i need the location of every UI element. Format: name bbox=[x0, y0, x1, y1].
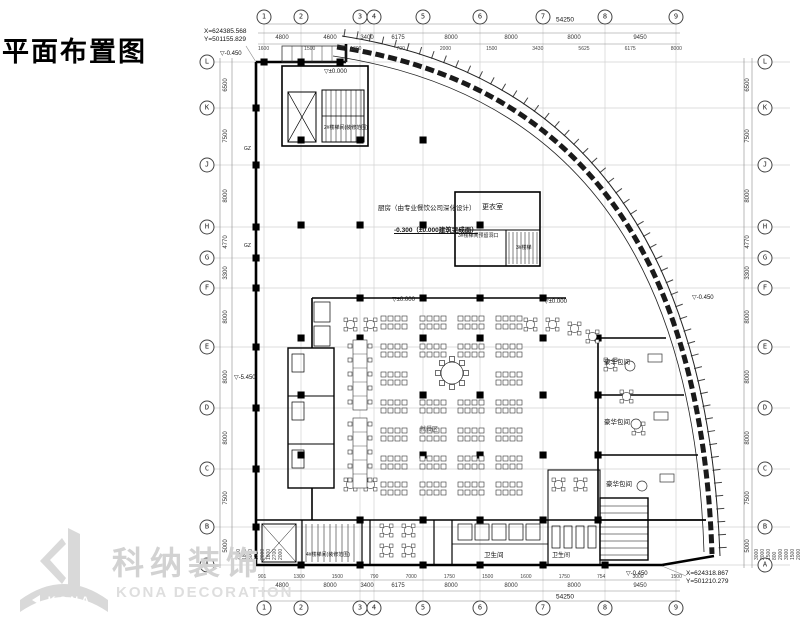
dimension: 4770 bbox=[223, 235, 229, 248]
dimension: 8000 bbox=[223, 310, 229, 323]
grid-bubble-top: 6 bbox=[473, 10, 488, 25]
coordinate-bottom-right: X=624318.867 Y=501210.279 bbox=[686, 570, 728, 586]
grid-bubble-bottom: 5 bbox=[416, 601, 431, 616]
room-label-vip: 豪华包间 bbox=[604, 416, 630, 426]
kona-logo-icon: KONA bbox=[16, 524, 112, 620]
coordinate-y: Y=501210.279 bbox=[686, 578, 728, 586]
grid-bubble-top: 7 bbox=[536, 10, 551, 25]
drawing-sheet: 平面布置图 X=624385.568 Y=501155.829 X=624318… bbox=[0, 0, 800, 629]
dimension: 1750 bbox=[444, 574, 455, 580]
dimension: 1500 bbox=[482, 574, 493, 580]
room-label-wc: 卫生间 bbox=[552, 550, 570, 559]
grid-bubble-left: F bbox=[200, 281, 215, 296]
grid-bubble-bottom: 2 bbox=[294, 601, 309, 616]
dimension: 9450 bbox=[633, 583, 646, 589]
dimension: 1600 bbox=[520, 574, 531, 580]
grid-bubble-bottom: 1 bbox=[257, 601, 272, 616]
dimension: 3300 bbox=[223, 266, 229, 279]
room-label-stair3: 3#楼梯 bbox=[516, 244, 532, 251]
dimension: 1500 bbox=[332, 574, 343, 580]
dimension: 8000 bbox=[671, 46, 682, 52]
dimension-chain-top: 1600 1500 1600 700 2000 1500 3430 5625 6… bbox=[258, 46, 682, 52]
dimension: 9450 bbox=[633, 35, 646, 41]
grid-bubble-bottom: 7 bbox=[536, 601, 551, 616]
dimension: 4800 bbox=[275, 35, 288, 41]
dimension: 790 bbox=[370, 574, 378, 580]
dimension: 3400 bbox=[360, 35, 373, 41]
page-title: 平面布置图 bbox=[2, 30, 147, 69]
dimension: 7500 bbox=[223, 491, 229, 504]
dimension: 8000 bbox=[223, 189, 229, 202]
column-tag: GZ bbox=[244, 243, 251, 249]
room-label-dining: 就餐区 bbox=[420, 424, 438, 433]
room-label-stair3-note: 3#楼梯间预留洞口 bbox=[458, 232, 499, 239]
dimension: 3430 bbox=[532, 46, 543, 52]
dimension: 6175 bbox=[391, 583, 404, 589]
dimension: 8000 bbox=[745, 431, 751, 444]
dimension: 6175 bbox=[625, 46, 636, 52]
dimension: 8000 bbox=[223, 370, 229, 383]
elevation-marker: ▽-5.450 bbox=[234, 374, 256, 381]
coordinate-y: Y=501155.829 bbox=[204, 36, 246, 44]
dining-tables bbox=[344, 316, 674, 557]
dimension: 1600 bbox=[350, 46, 361, 52]
dimension: 6500 bbox=[223, 78, 229, 91]
grid-bubble-left: J bbox=[200, 158, 215, 173]
grid-bubble-top: 9 bbox=[669, 10, 684, 25]
grid-bubble-left: G bbox=[200, 251, 215, 266]
dimension: 8000 bbox=[745, 189, 751, 202]
dimension-chain-bottom: 901 1300 1500 790 7000 1750 1500 1600 17… bbox=[258, 574, 682, 580]
grid-bubble-left: H bbox=[200, 220, 215, 235]
dimension: 8000 bbox=[444, 583, 457, 589]
grid-bubble-left: L bbox=[200, 55, 215, 70]
dimension: 4600 bbox=[323, 35, 336, 41]
room-label-vip: 豪华包间 bbox=[606, 478, 632, 488]
elevation-marker: ▽±0.000 bbox=[544, 298, 567, 305]
dimension: 3400 bbox=[360, 583, 373, 589]
dimension: 2000 bbox=[796, 60, 800, 560]
dimension-total: 54250 bbox=[556, 594, 574, 601]
grid-bubble-top: 8 bbox=[598, 10, 613, 25]
grid-bubble-top: 2 bbox=[294, 10, 309, 25]
grid-bubble-bottom: 4 bbox=[367, 601, 382, 616]
dimension: 700 bbox=[397, 46, 405, 52]
dimension-chain-right: 3000 2000 1500 800 2000 3000 1500 2000 bbox=[754, 60, 800, 560]
dimension: 1600 bbox=[258, 46, 269, 52]
logo-english-name: KONA DECORATION bbox=[116, 584, 294, 601]
grid-bubble-left: E bbox=[200, 340, 215, 355]
grid-bubble-top: 1 bbox=[257, 10, 272, 25]
grid-bubble-top: 4 bbox=[367, 10, 382, 25]
dimension: 1500 bbox=[486, 46, 497, 52]
room-label-stair4: 4#楼梯间(装修范围) bbox=[306, 551, 350, 558]
grid-bubble-left: D bbox=[200, 401, 215, 416]
dimension: 8000 bbox=[745, 310, 751, 323]
column-tag: GZ bbox=[244, 146, 251, 152]
dimension: 8000 bbox=[745, 370, 751, 383]
dimension: 1500 bbox=[304, 46, 315, 52]
dimension: 7000 bbox=[406, 574, 417, 580]
room-label-changing: 更衣室 bbox=[482, 202, 503, 212]
dimension: 8000 bbox=[323, 583, 336, 589]
coordinate-top-left: X=624385.568 Y=501155.829 bbox=[204, 28, 246, 44]
grid-bubble-bottom: 9 bbox=[669, 601, 684, 616]
grid-bubble-top: 5 bbox=[416, 10, 431, 25]
elevation-marker: ▽±0.000 bbox=[392, 296, 415, 303]
kitchen-note: 厨房（由专业餐饮公司深化设计） bbox=[378, 202, 476, 212]
dimension: 7500 bbox=[223, 129, 229, 142]
dimension: 5625 bbox=[578, 46, 589, 52]
elevation-marker: ▽-0.450 bbox=[626, 570, 648, 577]
grid-bubble-bottom: 8 bbox=[598, 601, 613, 616]
kona-logo-mark-text: KONA bbox=[48, 595, 92, 607]
dimension-total: 54250 bbox=[556, 17, 574, 24]
dimension: 5000 bbox=[745, 539, 751, 552]
grid-bubble-bottom: 6 bbox=[473, 601, 488, 616]
dimension: 8000 bbox=[444, 35, 457, 41]
dimension: 2000 bbox=[278, 60, 284, 560]
coordinate-x: X=624385.568 bbox=[204, 28, 246, 36]
dimension: 6500 bbox=[745, 78, 751, 91]
dimension: 1300 bbox=[294, 574, 305, 580]
grid-bubble-left: B bbox=[200, 520, 215, 535]
dimension: 8000 bbox=[504, 583, 517, 589]
dimension: 8000 bbox=[504, 35, 517, 41]
grid-bubble-left: C bbox=[200, 462, 215, 477]
logo-chinese-name: 科纳装饰 bbox=[112, 538, 264, 584]
room-label-vip: 豪华包间 bbox=[604, 356, 630, 366]
dimension: 8000 bbox=[223, 431, 229, 444]
dimension: 8000 bbox=[567, 583, 580, 589]
grid-bubble-bottom: 3 bbox=[353, 601, 368, 616]
elevation-marker: ▽-0.450 bbox=[692, 294, 714, 301]
dimension: 6175 bbox=[391, 35, 404, 41]
elevation-marker: ▽±0.000 bbox=[324, 68, 347, 75]
room-label-stair2: 2#楼梯间(装修范围) bbox=[324, 124, 368, 131]
dimension-chain-left: 2000 1800 3000 675 2000 1800 2700 2000 bbox=[236, 60, 284, 560]
dimension: 7500 bbox=[745, 129, 751, 142]
dimension: 2000 bbox=[440, 46, 451, 52]
floor-plan-drawing bbox=[0, 0, 800, 629]
grid-bubble-top: 3 bbox=[353, 10, 368, 25]
grid-bubble-left: K bbox=[200, 101, 215, 116]
dimension: 3300 bbox=[745, 266, 751, 279]
dimension: 1750 bbox=[559, 574, 570, 580]
dimension: 754 bbox=[597, 574, 605, 580]
dimension: 7500 bbox=[745, 491, 751, 504]
dimension: 4770 bbox=[745, 235, 751, 248]
dimension: 8000 bbox=[567, 35, 580, 41]
room-label-wc: 卫生间 bbox=[484, 549, 504, 559]
dimension: 1500 bbox=[671, 574, 682, 580]
coordinate-x: X=624318.867 bbox=[686, 570, 728, 578]
elevation-marker: ▽-0.450 bbox=[220, 50, 242, 57]
